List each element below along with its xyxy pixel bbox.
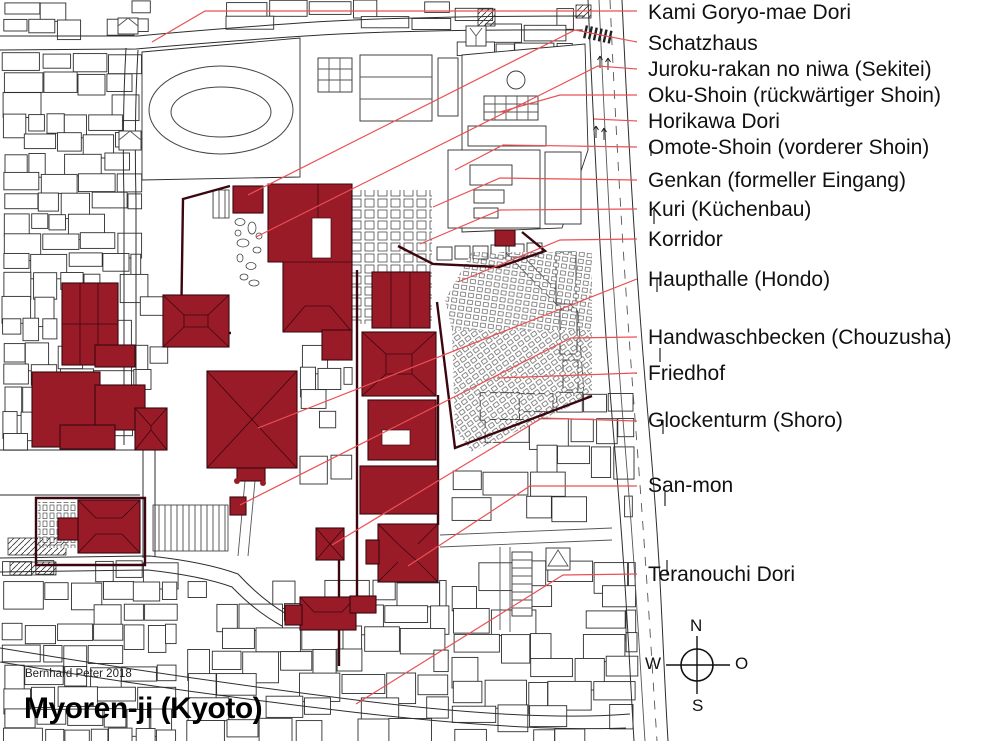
map-label: Teranouchi Dori [648, 562, 795, 588]
map-label: Korridor [648, 227, 723, 253]
compass-north-label: N [690, 616, 702, 636]
map-page: N S W O Kami Goryo-mae DoriSchatzhausJur… [0, 0, 1000, 741]
map-label: Haupthalle (Hondo) [648, 267, 830, 293]
map-label: Omote-Shoin (vorderer Shoin) [648, 135, 929, 161]
compass-west-label: W [645, 654, 661, 674]
map-label: Horikawa Dori [648, 109, 780, 135]
stair-building [512, 552, 532, 616]
west-hall [163, 295, 229, 347]
map-label: Schatzhaus [648, 31, 758, 57]
north-hall [268, 184, 352, 332]
compass-south-label: S [692, 696, 703, 716]
map-label: Kuri (Küchenbau) [648, 197, 811, 223]
temple-map-canvas [0, 0, 1000, 741]
shoro-bell-tower [316, 528, 344, 560]
parking-stripes [153, 505, 228, 551]
compass-east-label: O [735, 654, 748, 674]
garden-pond [507, 71, 525, 89]
map-label: Genkan (formeller Eingang) [648, 168, 906, 194]
attribution: Bernhard Peter 2018 [25, 668, 132, 680]
shoin-annex [468, 126, 546, 146]
hondo-main-hall [207, 371, 297, 481]
leader-horikawa [594, 119, 637, 121]
tree-symbol [466, 26, 486, 46]
map-label: Kami Goryo-mae Dori [648, 0, 851, 26]
rock-garden [235, 219, 262, 287]
east-halls-column [360, 272, 438, 582]
chouzusha-basin [230, 497, 246, 515]
map-label: Juroku-rakan no niwa (Sekitei) [648, 57, 932, 83]
map-label: Glockenturm (Shoro) [648, 408, 843, 434]
map-label: San-mon [648, 473, 733, 499]
map-label: Friedhof [648, 361, 725, 387]
compass-rose [666, 636, 730, 694]
map-label: Handwaschbecken (Chouzusha) [648, 325, 952, 351]
sports-field [142, 38, 300, 180]
page-title: Myoren-ji (Kyoto) [24, 692, 262, 726]
northeast-gate [495, 230, 515, 246]
map-label: Oku-Shoin (rückwärtiger Shoin) [648, 83, 941, 109]
